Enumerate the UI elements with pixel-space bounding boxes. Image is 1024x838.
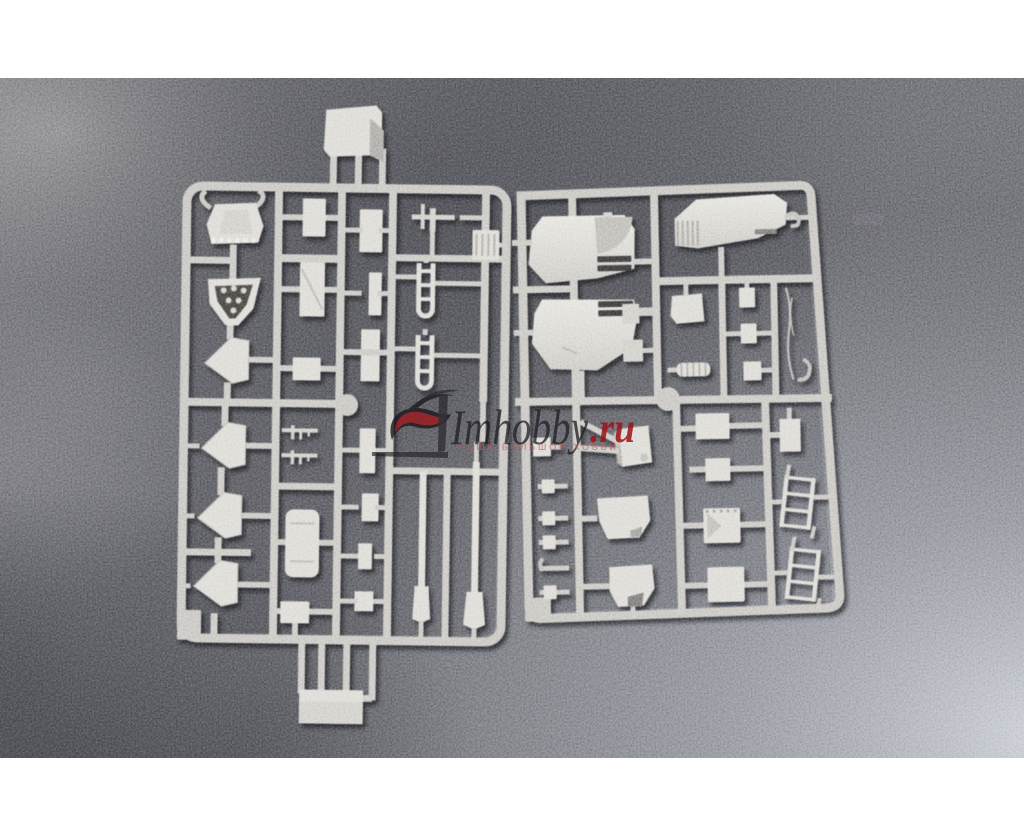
svg-text:НАШЕ БОЛЬШОЕ ХОББИ: НАШЕ БОЛЬШОЕ ХОББИ: [458, 442, 616, 452]
